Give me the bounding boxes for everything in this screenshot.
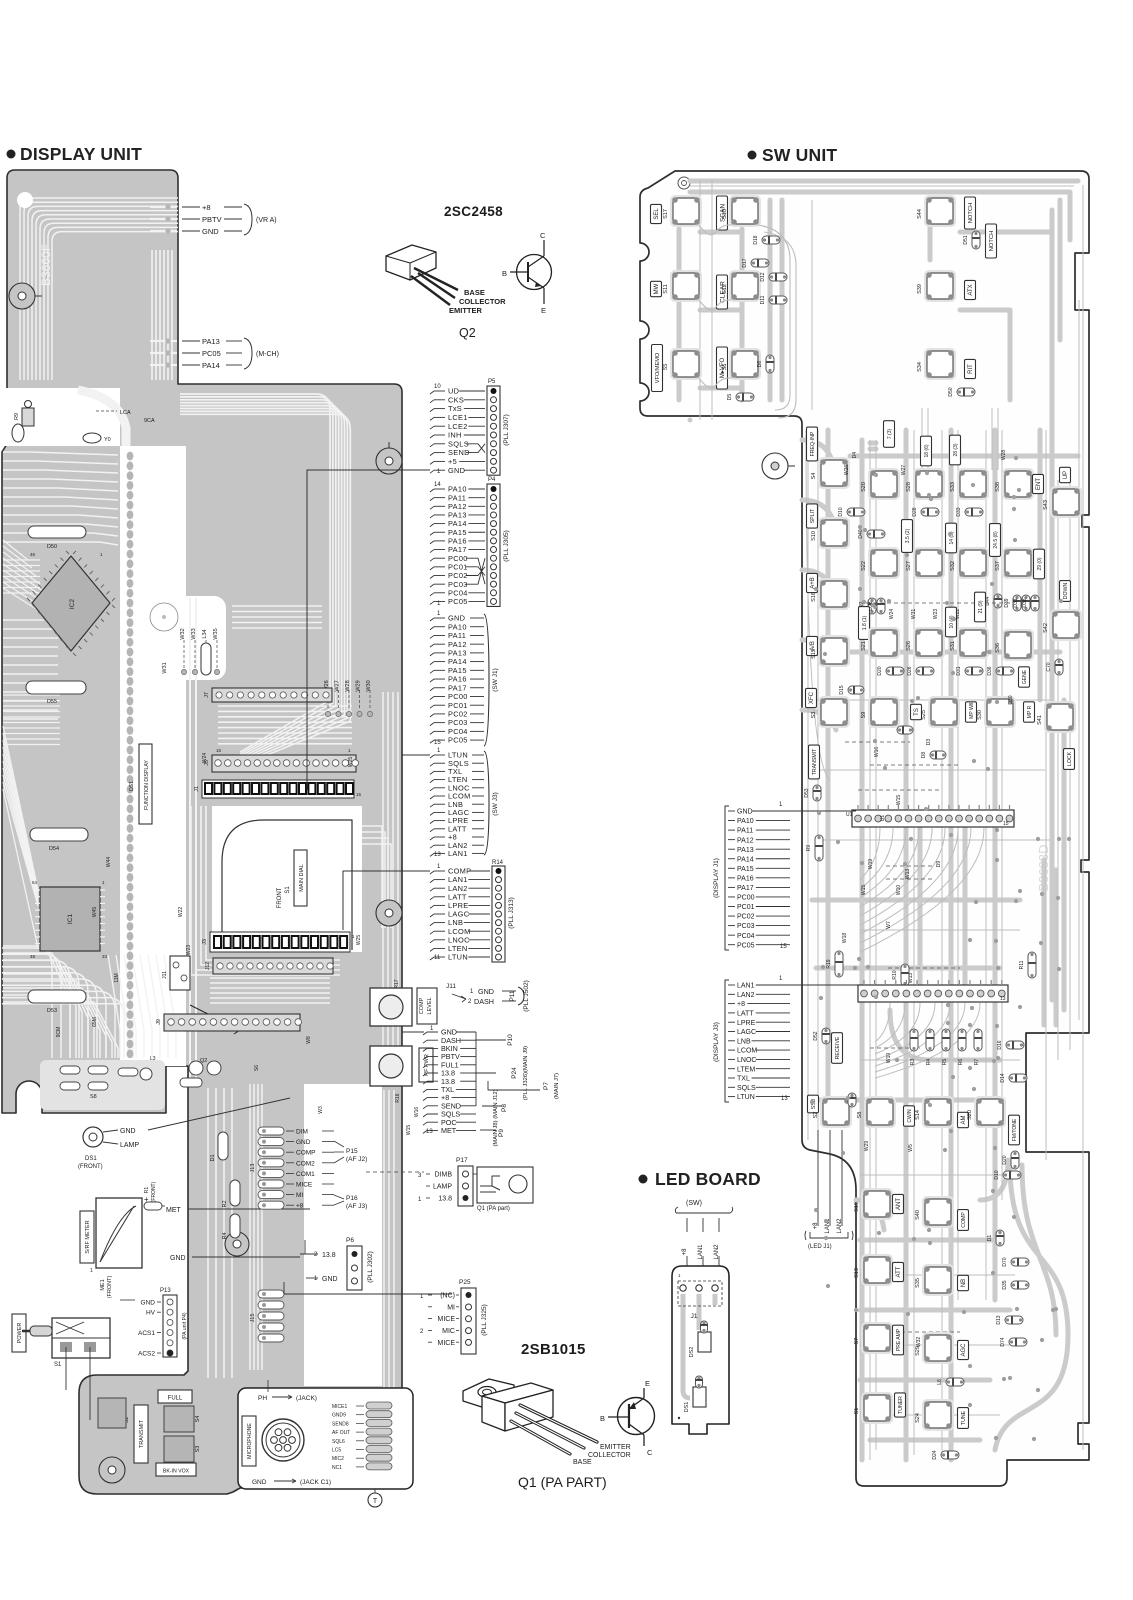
svg-text:DIM: DIM (296, 1129, 308, 1136)
svg-text:D13: D13 (996, 1315, 1002, 1324)
svg-text:+8: +8 (296, 1203, 304, 1210)
svg-text:W16: W16 (414, 1107, 420, 1118)
svg-text:B: B (502, 269, 507, 278)
svg-text:U1: U1 (846, 812, 853, 818)
svg-text:(PLL J307): (PLL J307) (503, 414, 510, 446)
svg-text:W33: W33 (191, 628, 197, 639)
svg-text:T: T (373, 1498, 378, 1505)
svg-text:2SC2458: 2SC2458 (444, 204, 503, 219)
svg-text:W29: W29 (356, 680, 362, 691)
svg-text:R2: R2 (222, 1200, 228, 1207)
svg-text:FUNCTION DISPLAY: FUNCTION DISPLAY (144, 760, 150, 810)
svg-text:D14: D14 (1000, 1073, 1006, 1082)
svg-text:MP W: MP W (969, 705, 975, 719)
svg-text:L34: L34 (202, 629, 208, 638)
svg-text:LAN2: LAN2 (737, 992, 755, 999)
svg-text:L6: L6 (937, 1379, 943, 1385)
svg-text:13: 13 (426, 1129, 433, 1135)
svg-text:S33: S33 (950, 482, 956, 492)
svg-text:LED BOARD: LED BOARD (655, 1169, 761, 1189)
svg-text:POWER: POWER (17, 1323, 23, 1344)
svg-text:S3: S3 (195, 1446, 201, 1453)
svg-text:R10: R10 (892, 970, 898, 979)
svg-text:15: 15 (1003, 821, 1009, 827)
svg-text:Q1 (PA part): Q1 (PA part) (477, 1206, 510, 1212)
svg-text:DS1: DS1 (684, 1402, 690, 1413)
svg-text:R9: R9 (806, 845, 812, 852)
svg-text:HV: HV (146, 1310, 156, 1317)
svg-text:1: 1 (437, 864, 441, 870)
svg-text:3.5 (2): 3.5 (2) (905, 528, 911, 543)
svg-text:W7: W7 (886, 921, 892, 929)
svg-text:MW: MW (654, 283, 660, 294)
svg-text:C: C (540, 231, 546, 240)
svg-text:(M-CH): (M-CH) (256, 351, 279, 358)
svg-text:SQLS: SQLS (737, 1085, 756, 1092)
svg-text:PC05: PC05 (448, 736, 468, 745)
svg-text:J9: J9 (156, 1019, 162, 1025)
svg-text:(FRONT): (FRONT) (78, 1164, 103, 1170)
svg-text:DIMB: DIMB (435, 1172, 453, 1179)
svg-text:SQLS: SQLS (448, 439, 469, 448)
svg-text:PH: PH (258, 1395, 267, 1402)
svg-text:W10: W10 (896, 885, 902, 896)
svg-text:R14: R14 (492, 860, 504, 866)
svg-text:DS1: DS1 (85, 1156, 97, 1162)
svg-text:LAN1: LAN1 (448, 849, 468, 858)
svg-text:29 (0): 29 (0) (1037, 557, 1043, 570)
svg-text:(PLL J325): (PLL J325) (481, 1304, 488, 1336)
svg-text:(JACK C1): (JACK C1) (300, 1479, 331, 1486)
svg-text:S7: S7 (854, 1338, 860, 1345)
svg-text:S26: S26 (906, 641, 912, 651)
svg-text:W15: W15 (861, 885, 867, 896)
svg-text:(PLL J302): (PLL J302) (367, 1251, 374, 1283)
svg-text:S24: S24 (915, 1413, 921, 1423)
svg-text:D74: D74 (1000, 1337, 1006, 1346)
svg-text:P9: P9 (498, 1129, 505, 1137)
svg-text:E: E (541, 306, 546, 315)
svg-text:RECEIVE: RECEIVE (835, 1036, 841, 1059)
svg-text:(DISPLAY J3): (DISPLAY J3) (713, 1022, 720, 1062)
svg-text:W10: W10 (886, 1053, 892, 1064)
svg-text:15: 15 (356, 792, 362, 797)
svg-text:2: 2 (420, 1329, 424, 1335)
svg-text:S42: S42 (1043, 623, 1049, 633)
svg-text:PC01: PC01 (737, 904, 755, 911)
svg-text:ENT: ENT (1036, 478, 1042, 490)
svg-text:P25: P25 (459, 1279, 471, 1286)
svg-text:R1: R1 (144, 1187, 150, 1194)
svg-text:(PLL J305): (PLL J305) (503, 530, 510, 562)
svg-text:(SW J3): (SW J3) (492, 792, 499, 815)
svg-text:ATX: ATX (968, 284, 974, 295)
svg-text:L3: L3 (150, 1056, 156, 1062)
svg-text:16: 16 (216, 748, 222, 753)
svg-text:D50: D50 (47, 544, 57, 550)
svg-text:PC04: PC04 (448, 588, 468, 597)
svg-text:S40: S40 (915, 1210, 921, 1220)
svg-text:S29: S29 (915, 1346, 921, 1356)
svg-text:D4: D4 (852, 452, 858, 459)
svg-text:D52: D52 (813, 1031, 819, 1040)
svg-text:S2: S2 (813, 1112, 819, 1119)
svg-text:PA11: PA11 (448, 631, 466, 640)
svg-text:1: 1 (779, 976, 783, 982)
svg-text:D9: D9 (936, 861, 942, 868)
svg-text:C: C (647, 1448, 653, 1457)
svg-text:TUNE: TUNE (961, 1410, 967, 1425)
svg-text:CW/N: CW/N (907, 1109, 913, 1123)
svg-text:7 (3): 7 (3) (887, 429, 893, 440)
svg-text:ANT: ANT (896, 1198, 902, 1210)
svg-text:PC02: PC02 (737, 914, 755, 921)
svg-text:D55: D55 (47, 699, 57, 705)
svg-text:+8: +8 (737, 1001, 745, 1008)
svg-text:(JACK): (JACK) (296, 1395, 317, 1402)
svg-text:13: 13 (1000, 996, 1006, 1002)
svg-text:D6: D6 (757, 361, 763, 368)
svg-text:AGC: AGC (961, 1343, 967, 1357)
svg-text:TRANSMIT: TRANSMIT (812, 748, 818, 775)
svg-text:UP: UP (1063, 471, 1069, 479)
svg-text:PA16: PA16 (448, 675, 467, 684)
svg-text:PA13: PA13 (737, 847, 754, 854)
svg-text:COM1: COM1 (296, 1171, 315, 1178)
svg-text:33: 33 (102, 954, 108, 959)
svg-text:COM2: COM2 (296, 1160, 315, 1167)
svg-text:SEND8: SEND8 (332, 1421, 349, 1427)
svg-text:D3: D3 (926, 739, 932, 746)
svg-text:MAIN DIAL: MAIN DIAL (299, 864, 305, 892)
svg-text:S43: S43 (1043, 500, 1049, 510)
svg-text:S37: S37 (995, 561, 1001, 571)
svg-text:PC02: PC02 (448, 710, 468, 719)
svg-text:FRONT: FRONT (277, 887, 283, 908)
svg-text:J11: J11 (446, 983, 456, 990)
svg-text:+5: +5 (448, 457, 457, 466)
svg-text:J15: J15 (250, 1314, 256, 1323)
svg-text:PA17: PA17 (448, 545, 467, 554)
svg-text:Q2: Q2 (200, 1058, 207, 1064)
svg-text:GND: GND (202, 227, 219, 236)
svg-text:PA15: PA15 (448, 528, 467, 537)
svg-text:FULL: FULL (168, 1396, 183, 1402)
svg-text:TXL: TXL (737, 1076, 750, 1083)
svg-text:S21: S21 (861, 641, 867, 651)
svg-text:DS2: DS2 (689, 1347, 695, 1358)
svg-text:DS1: DS1 (129, 781, 135, 791)
svg-text:PC04: PC04 (737, 933, 755, 940)
svg-text:R17: R17 (394, 979, 400, 988)
svg-text:D15: D15 (839, 685, 845, 694)
svg-text:GND: GND (448, 614, 465, 623)
svg-text:15: 15 (780, 944, 787, 950)
svg-text:S28: S28 (906, 482, 912, 492)
svg-text:R16: R16 (395, 1093, 401, 1102)
svg-text:AF OUT: AF OUT (332, 1430, 350, 1436)
svg-text:W29: W29 (864, 1141, 870, 1152)
svg-text:S6: S6 (254, 1065, 260, 1071)
svg-text:PA11: PA11 (737, 828, 753, 835)
svg-text:P6: P6 (346, 1237, 354, 1244)
svg-text:D18: D18 (753, 235, 759, 244)
svg-text:DISPLAY UNIT: DISPLAY UNIT (20, 144, 142, 164)
svg-text:SW UNIT: SW UNIT (762, 145, 837, 165)
svg-text:S11: S11 (663, 284, 669, 293)
svg-text:P13: P13 (160, 1288, 171, 1294)
svg-text:Q1 (PA PART): Q1 (PA PART) (518, 1474, 607, 1490)
svg-text:GENE: GENE (1022, 669, 1028, 684)
svg-text:W19: W19 (868, 859, 874, 870)
svg-text:GND: GND (448, 466, 465, 475)
svg-text:FM/TONE: FM/TONE (1012, 1118, 1018, 1141)
svg-text:UD: UD (448, 387, 459, 396)
svg-text:MICROPHONE: MICROPHONE (247, 1423, 253, 1459)
svg-text:(SW): (SW) (686, 1200, 702, 1207)
svg-text:COMP: COMP (296, 1150, 316, 1157)
svg-text:1: 1 (437, 748, 441, 754)
svg-text:ACS1: ACS1 (138, 1330, 155, 1337)
svg-text:S9: S9 (861, 712, 867, 719)
svg-text:J12: J12 (205, 962, 211, 970)
svg-text:PA10: PA10 (737, 818, 754, 825)
svg-text:LTEM: LTEM (737, 1066, 755, 1073)
svg-text:PA12: PA12 (448, 502, 467, 511)
svg-text:A+B: A+B (810, 577, 816, 589)
svg-text:MIC2: MIC2 (332, 1456, 344, 1462)
svg-text:D33: D33 (956, 507, 962, 516)
svg-text:D35: D35 (1002, 1280, 1008, 1289)
svg-text:(AF J3): (AF J3) (346, 1203, 367, 1210)
svg-text:D10: D10 (838, 507, 844, 516)
svg-text:S41: S41 (1037, 715, 1043, 725)
svg-text:S20: S20 (967, 1110, 973, 1120)
svg-text:PA15: PA15 (448, 666, 467, 675)
svg-text:TxS: TxS (448, 404, 462, 413)
svg-text:S30: S30 (977, 710, 983, 720)
svg-text:D10: D10 (994, 1170, 1000, 1179)
svg-text:ACS2: ACS2 (138, 1351, 155, 1358)
svg-text:(AF J2): (AF J2) (346, 1156, 367, 1163)
svg-text:64: 64 (32, 880, 38, 885)
svg-text:D54: D54 (49, 846, 59, 852)
svg-text:S36: S36 (995, 643, 1001, 653)
svg-text:S17: S17 (663, 209, 669, 219)
svg-text:U1: U1 (880, 815, 886, 822)
svg-text:PA12: PA12 (448, 640, 467, 649)
svg-text:COLLECTOR: COLLECTOR (588, 1452, 631, 1459)
svg-text:LC5: LC5 (332, 1448, 341, 1454)
svg-text:D31: D31 (956, 666, 962, 675)
svg-text:PA16: PA16 (448, 537, 467, 546)
svg-text:MICE1: MICE1 (332, 1404, 348, 1410)
svg-text:NB: NB (961, 1279, 967, 1287)
svg-text:PA14: PA14 (202, 361, 220, 370)
svg-text:MET: MET (166, 1207, 182, 1214)
svg-text:LNOC: LNOC (737, 1057, 756, 1064)
svg-text:PC05: PC05 (448, 597, 468, 606)
svg-text:PA12: PA12 (737, 837, 754, 844)
svg-text:P4: P4 (488, 477, 496, 483)
svg-text:D28: D28 (912, 507, 918, 516)
svg-text:TUNER: TUNER (898, 1396, 904, 1414)
svg-text:GND: GND (141, 1300, 156, 1307)
svg-text:(LED J1): (LED J1) (808, 1244, 832, 1250)
svg-text:GND: GND (170, 1255, 186, 1262)
svg-text:46: 46 (30, 552, 36, 557)
svg-text:D17: D17 (742, 258, 748, 267)
svg-text:EMITTER: EMITTER (449, 306, 482, 315)
svg-text:DASH: DASH (474, 997, 494, 1006)
svg-text:NC1: NC1 (332, 1465, 342, 1471)
svg-text:D12: D12 (760, 272, 766, 281)
svg-text:S25: S25 (921, 710, 927, 720)
svg-text:D38: D38 (1022, 598, 1028, 607)
svg-text:W31: W31 (911, 609, 917, 620)
svg-text:PA13: PA13 (202, 337, 220, 346)
svg-text:W13: W13 (905, 869, 911, 880)
svg-text:SQL6: SQL6 (332, 1439, 345, 1445)
svg-text:GND: GND (252, 1479, 267, 1486)
svg-text:CKS: CKS (448, 395, 464, 404)
svg-text:S1: S1 (54, 1362, 62, 1368)
svg-text:W26: W26 (844, 465, 850, 476)
svg-text:MIC: MIC (442, 1328, 455, 1335)
svg-text:W31: W31 (162, 662, 168, 673)
svg-text:S22: S22 (861, 561, 867, 571)
svg-text:R11: R11 (1019, 960, 1025, 969)
svg-text:LATT: LATT (737, 1011, 754, 1018)
svg-text:15: 15 (434, 740, 441, 746)
svg-text:13.8: 13.8 (322, 1252, 336, 1259)
svg-text:LPRE: LPRE (737, 1020, 756, 1027)
svg-text:D30: D30 (1008, 695, 1014, 704)
svg-text:(FRONT): (FRONT) (151, 1181, 157, 1202)
svg-text:B: B (600, 1414, 605, 1423)
svg-text:S34: S34 (917, 362, 923, 372)
svg-text:MICE: MICE (438, 1340, 456, 1347)
svg-text:LTUN: LTUN (448, 953, 468, 962)
svg-text:W44: W44 (106, 857, 112, 868)
svg-text:S8: S8 (857, 1112, 863, 1119)
svg-text:MET: MET (441, 1126, 457, 1135)
svg-text:48: 48 (30, 954, 36, 959)
svg-text:(FRONT): (FRONT) (107, 1276, 113, 1299)
svg-text:P10: P10 (507, 1034, 514, 1046)
svg-text:S5: S5 (663, 364, 669, 371)
svg-text:R5: R5 (942, 1059, 948, 1066)
svg-text:24.5 (8): 24.5 (8) (993, 531, 999, 549)
svg-text:W25: W25 (356, 935, 362, 946)
svg-text:D24: D24 (932, 1450, 938, 1459)
svg-text:LAMP: LAMP (433, 1184, 452, 1191)
svg-text:ATT: ATT (896, 1266, 902, 1277)
svg-text:11: 11 (434, 955, 441, 961)
svg-text:PC01: PC01 (448, 701, 468, 710)
svg-text:PBTV: PBTV (202, 215, 222, 224)
svg-text:PA16: PA16 (737, 875, 754, 882)
svg-text:BK-IN VOX: BK-IN VOX (163, 1469, 190, 1475)
svg-text:P24: P24 (511, 1067, 518, 1079)
svg-text:XFC: XFC (809, 691, 815, 704)
svg-text:S38: S38 (995, 482, 1001, 492)
svg-text:TRANSMIT: TRANSMIT (139, 1419, 145, 1448)
svg-text:D53: D53 (47, 1008, 57, 1014)
svg-text:W15: W15 (896, 795, 902, 806)
svg-text:W45: W45 (92, 907, 98, 918)
svg-text:1: 1 (418, 1197, 422, 1203)
svg-text:W25: W25 (348, 757, 354, 768)
svg-text:1: 1 (437, 611, 441, 617)
svg-text:J1: J1 (194, 786, 200, 792)
svg-text:PC03: PC03 (737, 923, 755, 930)
svg-text:LAMP: LAMP (120, 1142, 139, 1149)
svg-text:GND9: GND9 (332, 1413, 346, 1419)
svg-text:PC05: PC05 (202, 349, 221, 358)
svg-text:W3: W3 (318, 1106, 324, 1114)
svg-text:R7: R7 (974, 1059, 980, 1066)
svg-text:S44: S44 (917, 209, 923, 219)
svg-text:VFO/MEMO: VFO/MEMO (655, 352, 661, 383)
svg-text:(PLL J326)(MAIN J9): (PLL J326)(MAIN J9) (523, 1046, 529, 1100)
svg-text:P15: P15 (346, 1148, 358, 1155)
svg-text:P11: P11 (509, 990, 516, 1001)
svg-text:BASE: BASE (464, 288, 485, 297)
svg-text:2SB1015: 2SB1015 (521, 1341, 586, 1358)
svg-text:S35: S35 (915, 1278, 921, 1288)
svg-text:FREQ-INP: FREQ-INP (810, 431, 816, 456)
svg-text:PC00: PC00 (448, 692, 468, 701)
svg-text:W5: W5 (908, 1144, 914, 1152)
svg-text:PC03: PC03 (448, 718, 468, 727)
svg-text:COLLECTOR: COLLECTOR (459, 297, 506, 306)
svg-text:S31: S31 (950, 641, 956, 651)
svg-text:NOTCH: NOTCH (989, 231, 995, 252)
svg-text:S6: S6 (722, 364, 728, 371)
svg-text:S4: S4 (195, 1416, 201, 1423)
svg-text:1: 1 (779, 802, 783, 808)
svg-text:EMITTER: EMITTER (600, 1444, 631, 1451)
svg-text:PA11: PA11 (448, 493, 466, 502)
svg-text:9CA: 9CA (144, 418, 155, 424)
svg-text:LCOM: LCOM (737, 1048, 757, 1055)
svg-text:S8: S8 (90, 1094, 97, 1100)
svg-text:W30: W30 (366, 680, 372, 691)
svg-text:ME1: ME1 (100, 1279, 106, 1290)
svg-text:MICE: MICE (296, 1182, 313, 1189)
svg-text:R4: R4 (926, 1059, 932, 1066)
svg-text:COMP: COMP (419, 997, 425, 1014)
svg-text:LCE1: LCE1 (448, 413, 468, 422)
svg-text:+8: +8 (813, 1222, 819, 1230)
svg-text:B3660F: B3660F (39, 244, 53, 286)
svg-text:BASE: BASE (573, 1459, 592, 1466)
svg-text:MP R: MP R (1027, 705, 1033, 718)
svg-text:W32: W32 (916, 1337, 922, 1348)
svg-text:PC02: PC02 (448, 571, 468, 580)
svg-text:D53: D53 (804, 788, 810, 797)
svg-text:LCA: LCA (120, 410, 131, 416)
svg-text:R6: R6 (958, 1059, 964, 1066)
svg-text:NOTCH: NOTCH (968, 203, 974, 224)
svg-text:TS: TS (914, 708, 920, 716)
svg-text:S27: S27 (906, 561, 912, 571)
svg-text:(PA unit P4): (PA unit P4) (182, 1312, 188, 1340)
svg-text:LAN2: LAN2 (837, 1218, 843, 1234)
svg-text:J11: J11 (162, 971, 168, 979)
svg-text:E: E (645, 1379, 650, 1388)
